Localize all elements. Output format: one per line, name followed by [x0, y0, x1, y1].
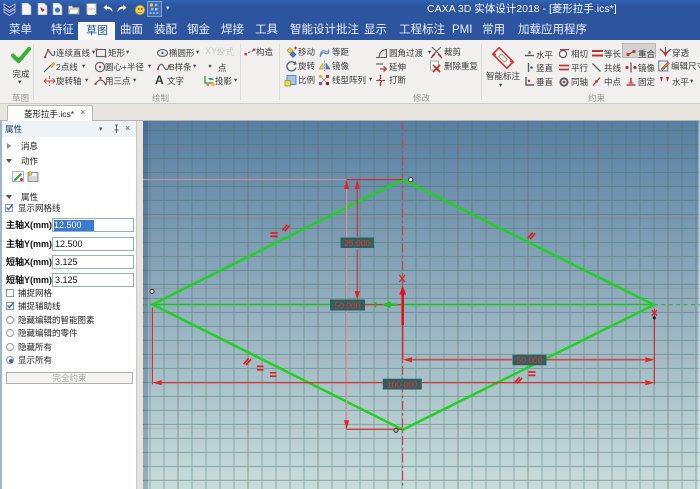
- svg-text:50.000: 50.000: [517, 355, 543, 365]
- svg-text:50.000: 50.000: [335, 300, 361, 310]
- svg-text:25.000: 25.000: [344, 238, 370, 248]
- svg-text:100.000: 100.000: [387, 379, 418, 389]
